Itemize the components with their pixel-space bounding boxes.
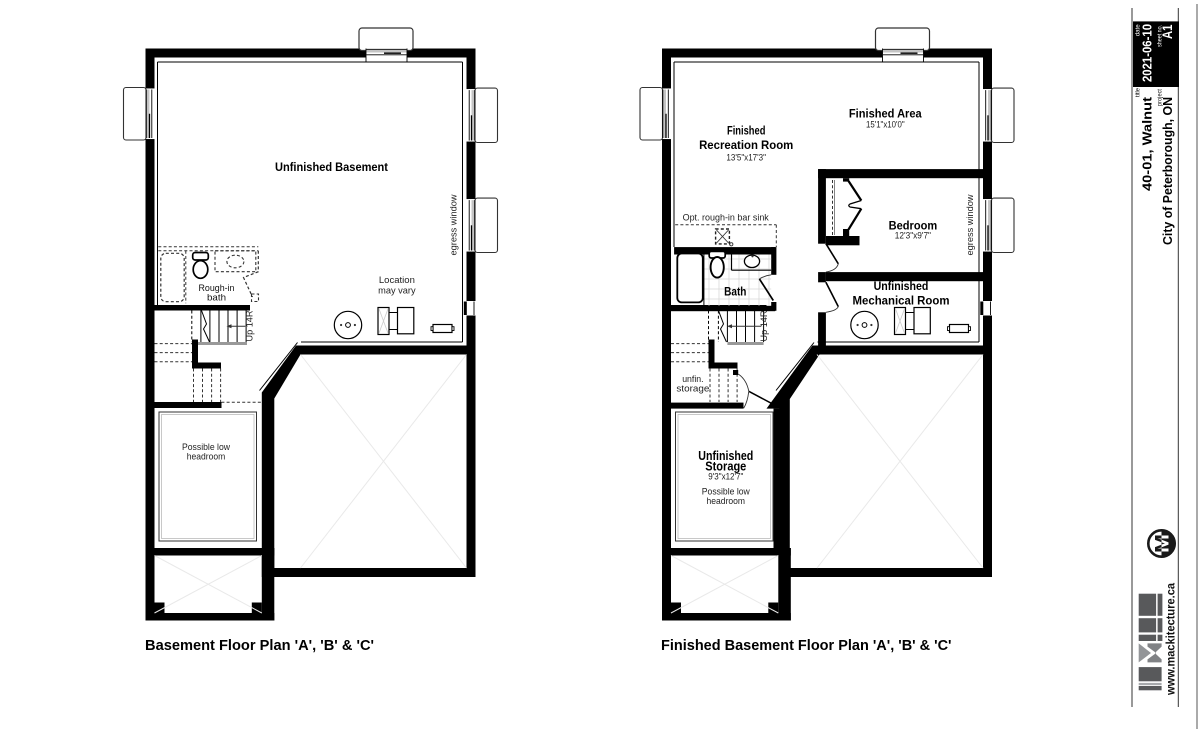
svg-text:title: title <box>1135 88 1142 97</box>
svg-text:storage: storage <box>676 384 709 395</box>
svg-text:egress window: egress window <box>449 194 459 256</box>
svg-text:City of Peterborough, ON: City of Peterborough, ON <box>1160 97 1175 245</box>
svg-text:2021-06-10: 2021-06-10 <box>1140 24 1155 82</box>
svg-text:13'5"x17'3": 13'5"x17'3" <box>726 152 766 162</box>
svg-text:Unfinished: Unfinished <box>874 279 929 293</box>
svg-text:may vary: may vary <box>378 286 416 297</box>
svg-text:headroom: headroom <box>707 496 746 507</box>
svg-text:12'3"x9'7": 12'3"x9'7" <box>895 230 931 240</box>
svg-text:headroom: headroom <box>187 452 226 463</box>
svg-text:Finished: Finished <box>727 124 765 138</box>
svg-text:bath: bath <box>207 293 226 304</box>
svg-text:40-01, Walnut: 40-01, Walnut <box>1140 96 1155 191</box>
svg-text:Location: Location <box>379 275 415 286</box>
svg-text:Finished Area: Finished Area <box>849 106 922 120</box>
svg-text:Basement Floor Plan 'A', 'B' &: Basement Floor Plan 'A', 'B' & 'C' <box>145 638 374 654</box>
svg-text:Unfinished Basement: Unfinished Basement <box>275 160 388 174</box>
svg-text:A1: A1 <box>1160 24 1175 39</box>
svg-text:15'1"x10'0": 15'1"x10'0" <box>866 120 905 130</box>
svg-text:Opt. rough-in bar sink: Opt. rough-in bar sink <box>683 212 770 222</box>
svg-text:Up 14R: Up 14R <box>245 310 256 341</box>
svg-text:Finished Basement Floor Plan ': Finished Basement Floor Plan 'A', 'B' & … <box>661 638 952 654</box>
svg-text:Mechanical Room: Mechanical Room <box>853 293 950 307</box>
svg-text:9'3"x12'7": 9'3"x12'7" <box>708 472 743 482</box>
svg-text:www.mackitecture.ca: www.mackitecture.ca <box>1166 582 1178 696</box>
svg-text:egress window: egress window <box>965 194 975 256</box>
svg-text:Bath: Bath <box>724 285 746 299</box>
svg-text:Up 14R: Up 14R <box>759 310 770 341</box>
svg-text:Recreation Room: Recreation Room <box>699 138 793 152</box>
